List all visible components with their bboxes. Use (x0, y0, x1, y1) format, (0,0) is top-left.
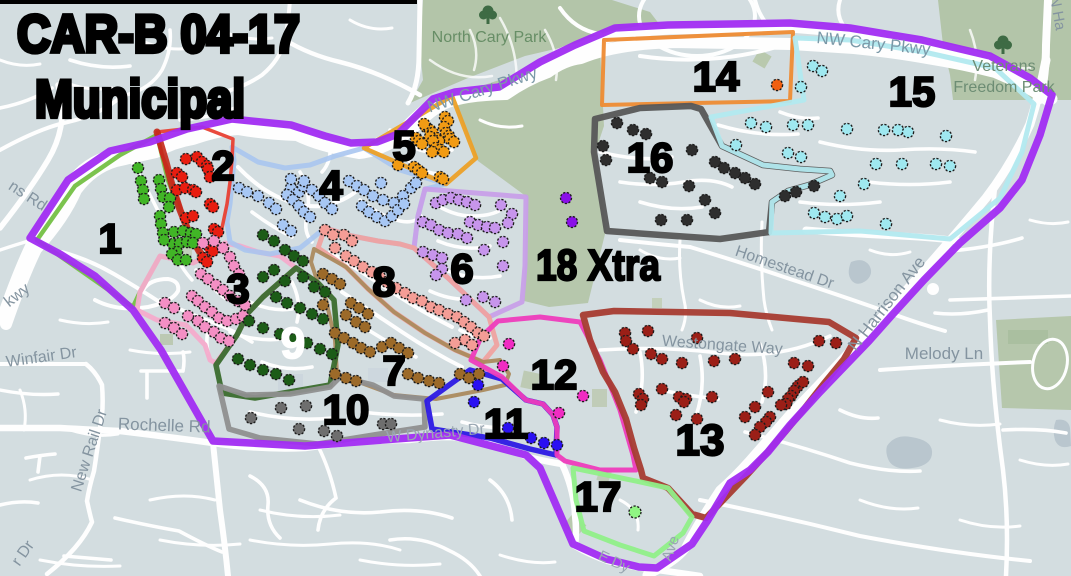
svg-text:1: 1 (98, 215, 121, 262)
svg-text:Freedom Park: Freedom Park (953, 79, 1055, 96)
svg-text:9: 9 (281, 319, 305, 368)
svg-text:12: 12 (531, 351, 578, 398)
svg-text:8: 8 (372, 258, 395, 305)
svg-text:5: 5 (392, 122, 415, 169)
svg-text:Veterans: Veterans (972, 58, 1035, 75)
svg-text:11: 11 (484, 400, 528, 447)
svg-text:4: 4 (319, 162, 343, 209)
svg-text:13: 13 (676, 416, 725, 465)
svg-text:Melody Ln: Melody Ln (905, 344, 983, 363)
svg-text:7: 7 (382, 347, 405, 394)
svg-text:2: 2 (211, 142, 234, 189)
svg-text:North Cary Park: North Cary Park (432, 29, 548, 46)
svg-text:17: 17 (575, 473, 622, 520)
svg-text:14: 14 (693, 53, 740, 100)
svg-text:18 Xtra: 18 Xtra (536, 241, 660, 290)
svg-text:15: 15 (889, 68, 936, 115)
svg-text:3: 3 (226, 265, 249, 312)
svg-text:Rochelle Rd: Rochelle Rd (118, 414, 211, 436)
svg-text:6: 6 (450, 245, 473, 292)
svg-text:Municipal: Municipal (35, 70, 245, 129)
svg-text:16: 16 (627, 134, 674, 181)
svg-text:10: 10 (323, 386, 370, 433)
svg-text:CAR-B 04-17: CAR-B 04-17 (17, 5, 300, 64)
